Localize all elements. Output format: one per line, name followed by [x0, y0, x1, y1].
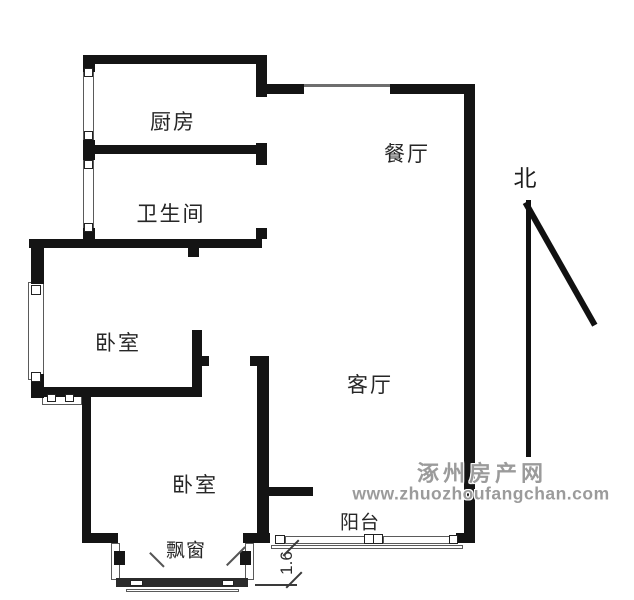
- room-label-bedroom2: 卧室: [172, 469, 218, 499]
- window-cap: [65, 394, 74, 402]
- room-label-bedroom1: 卧室: [95, 327, 141, 357]
- wall-kitchen-right-lower: [256, 143, 267, 165]
- dining-top-window-line: [304, 84, 390, 87]
- window-cap: [84, 131, 93, 140]
- bedroom1-left-window: [28, 282, 44, 380]
- wall-kitchen-top: [87, 55, 263, 64]
- dimension-label: 1.6: [277, 551, 297, 575]
- wall-bedroom2-door-jamb-left: [202, 356, 209, 366]
- wall-bedroom1-right: [192, 330, 202, 397]
- room-label-bay-window: 飘窗: [166, 536, 206, 563]
- bay-window-cap: [240, 551, 251, 565]
- balcony-window: [383, 536, 450, 544]
- wall-balcony-right-corner: [456, 533, 475, 543]
- window-cap: [31, 285, 41, 295]
- wall-bathroom-door-jamb-right: [256, 228, 267, 239]
- wall-bathroom-bottom: [29, 239, 262, 248]
- balcony-outer-line: [271, 545, 463, 549]
- window-cap: [449, 535, 458, 544]
- dimension-extension-line: [255, 584, 297, 586]
- wall-bedroom1-door-jamb: [188, 248, 199, 257]
- wall-balcony-door-stub: [269, 487, 313, 496]
- bay-window-cap: [114, 551, 125, 565]
- room-label-kitchen: 厨房: [150, 106, 196, 136]
- window-cap: [47, 394, 56, 402]
- floor-plan: 1.6 北 厨房 卫生间 餐厅 卧室 卧室 客厅 阳台 飘窗 涿州房产网 www…: [0, 0, 634, 600]
- wall-kitchen-bottom: [87, 145, 267, 154]
- bay-window-leader-line: [149, 552, 164, 567]
- room-label-living: 客厅: [347, 369, 393, 399]
- wall-dining-top-right: [390, 84, 475, 94]
- window-cap: [222, 580, 234, 586]
- window-cap: [130, 580, 143, 586]
- room-label-balcony: 阳台: [340, 508, 380, 535]
- window-cap: [84, 160, 93, 169]
- room-label-bathroom: 卫生间: [137, 198, 206, 228]
- wall-living-left: [257, 356, 269, 543]
- window-cap: [275, 535, 285, 544]
- window-cap: [84, 68, 93, 77]
- wall-bedroom2-left: [82, 395, 91, 543]
- bay-window-outer-line: [126, 589, 239, 592]
- north-arrow-diagonal: [523, 201, 598, 327]
- wall-left-exterior-upper: [31, 239, 44, 284]
- wall-bedroom2-bottom-left: [82, 533, 118, 543]
- window-cap: [31, 372, 41, 382]
- north-arrow-vertical: [526, 200, 531, 457]
- room-label-dining: 餐厅: [384, 138, 430, 168]
- watermark-site-url: www.zhuozhoufangchan.com: [352, 484, 609, 505]
- wall-dining-top-left: [256, 84, 304, 94]
- wall-bedroom1-bottom: [31, 387, 201, 397]
- wall-bedroom2-door-jamb-right: [250, 356, 257, 366]
- north-label: 北: [514, 159, 537, 193]
- window-cap: [373, 534, 383, 544]
- window-cap: [84, 223, 93, 232]
